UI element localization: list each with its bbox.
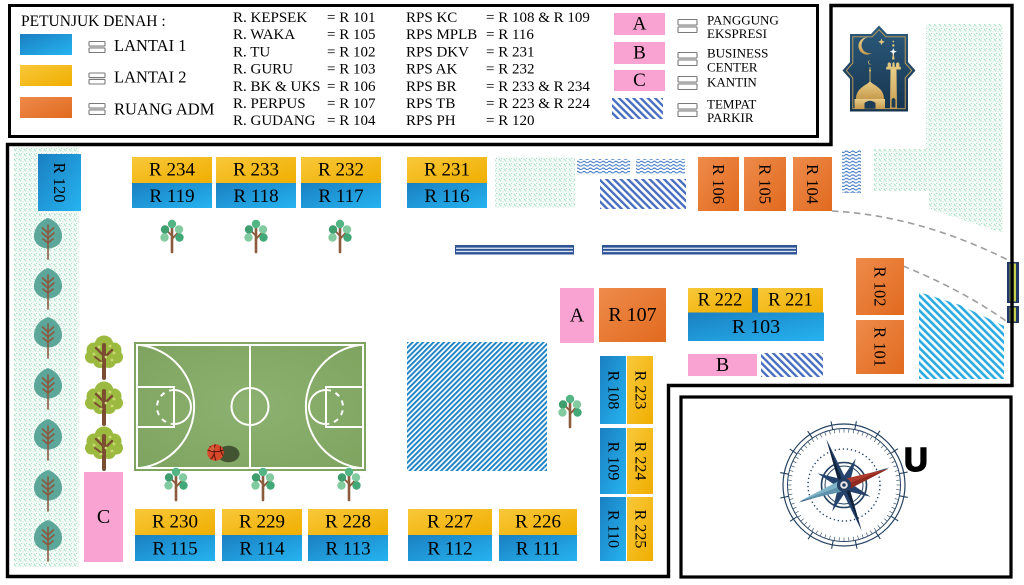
svg-text:R 114: R 114 xyxy=(239,539,285,560)
svg-text:= R 231: = R 231 xyxy=(486,44,534,60)
svg-text:= R 233 & R 234: = R 233 & R 234 xyxy=(486,79,590,95)
svg-text:R 224: R 224 xyxy=(632,442,649,481)
svg-text:RPS KC: RPS KC xyxy=(406,10,457,26)
svg-text:R 223: R 223 xyxy=(632,371,649,410)
svg-text:RPS BR: RPS BR xyxy=(406,79,456,95)
svg-text:R 112: R 112 xyxy=(427,539,472,560)
svg-text:KANTIN: KANTIN xyxy=(707,75,757,90)
svg-text:R 120: R 120 xyxy=(50,163,69,203)
svg-text:R 111: R 111 xyxy=(516,539,561,560)
svg-text:= R 104: = R 104 xyxy=(327,113,376,129)
svg-text:= R 223 & R 224: = R 223 & R 224 xyxy=(486,96,590,112)
svg-text:R. BK & UKS: R. BK & UKS xyxy=(233,79,321,95)
svg-text:R 116: R 116 xyxy=(424,186,469,207)
svg-text:R 108: R 108 xyxy=(605,371,622,410)
svg-text:= R 116: = R 116 xyxy=(486,27,534,43)
svg-text:R 119: R 119 xyxy=(149,186,194,207)
svg-text:RPS DKV: RPS DKV xyxy=(406,44,469,60)
svg-text:= R 105: = R 105 xyxy=(327,27,375,43)
svg-text:PARKIR: PARKIR xyxy=(707,110,754,125)
svg-text:R 234: R 234 xyxy=(149,160,195,181)
svg-text:C: C xyxy=(97,506,110,528)
svg-text:R 231: R 231 xyxy=(424,160,470,181)
svg-text:PETUNJUK DENAH :: PETUNJUK DENAH : xyxy=(21,13,166,30)
svg-text:= R 101: = R 101 xyxy=(327,10,375,26)
svg-text:R 118: R 118 xyxy=(233,186,278,207)
svg-text:R 228: R 228 xyxy=(325,512,371,533)
svg-text:R 101: R 101 xyxy=(871,327,890,367)
svg-text:R 102: R 102 xyxy=(871,267,890,307)
svg-text:R 227: R 227 xyxy=(427,512,473,533)
svg-text:LANTAI 1: LANTAI 1 xyxy=(114,36,186,55)
svg-text:= R 103: = R 103 xyxy=(327,62,375,78)
svg-text:R. WAKA: R. WAKA xyxy=(233,27,295,43)
svg-text:R 107: R 107 xyxy=(608,304,656,326)
svg-text:R 110: R 110 xyxy=(605,510,622,548)
svg-text:R 221: R 221 xyxy=(768,290,813,310)
svg-text:U: U xyxy=(904,441,928,478)
svg-text:R 105: R 105 xyxy=(756,164,775,204)
svg-text:RPS AK: RPS AK xyxy=(406,62,457,78)
svg-text:R 106: R 106 xyxy=(709,164,728,204)
svg-text:R. TU: R. TU xyxy=(233,44,270,60)
svg-text:R 226: R 226 xyxy=(515,512,561,533)
svg-text:LANTAI 2: LANTAI 2 xyxy=(114,68,186,87)
svg-text:R. GUDANG: R. GUDANG xyxy=(233,113,316,129)
svg-text:R. GURU: R. GURU xyxy=(233,62,293,78)
svg-text:R 103: R 103 xyxy=(732,316,780,338)
svg-text:EKSPRESI: EKSPRESI xyxy=(707,26,767,41)
svg-text:= R 107: = R 107 xyxy=(327,96,376,112)
svg-text:R 233: R 233 xyxy=(233,160,279,181)
svg-text:B: B xyxy=(633,43,646,64)
svg-text:CENTER: CENTER xyxy=(707,60,758,75)
svg-text:R 104: R 104 xyxy=(803,164,822,204)
svg-text:RPS MPLB: RPS MPLB xyxy=(406,27,477,43)
svg-text:= R 102: = R 102 xyxy=(327,44,375,60)
svg-text:RPS TB: RPS TB xyxy=(406,96,455,112)
svg-text:R 222: R 222 xyxy=(698,290,743,310)
svg-text:A: A xyxy=(570,305,585,327)
svg-text:R 115: R 115 xyxy=(152,539,197,560)
svg-text:C: C xyxy=(633,70,646,91)
svg-text:R 117: R 117 xyxy=(318,186,363,207)
svg-text:R 225: R 225 xyxy=(632,510,649,549)
svg-text:B: B xyxy=(716,354,729,376)
svg-text:R 232: R 232 xyxy=(318,160,364,181)
svg-text:= R 106: = R 106 xyxy=(327,79,376,95)
svg-text:BUSINESS: BUSINESS xyxy=(707,46,768,61)
svg-text:R. KEPSEK: R. KEPSEK xyxy=(233,10,307,26)
svg-text:= R 120: = R 120 xyxy=(486,113,534,129)
svg-text:R 109: R 109 xyxy=(605,442,622,481)
svg-text:R. PERPUS: R. PERPUS xyxy=(233,96,306,112)
svg-text:RUANG ADM: RUANG ADM xyxy=(114,100,215,119)
svg-text:= R 108 & R 109: = R 108 & R 109 xyxy=(486,10,590,26)
svg-text:R 230: R 230 xyxy=(152,512,198,533)
svg-text:= R 232: = R 232 xyxy=(486,62,534,78)
svg-text:RPS PH: RPS PH xyxy=(406,113,456,129)
svg-text:R 229: R 229 xyxy=(239,512,285,533)
svg-text:A: A xyxy=(633,14,647,35)
svg-text:R 113: R 113 xyxy=(325,539,370,560)
